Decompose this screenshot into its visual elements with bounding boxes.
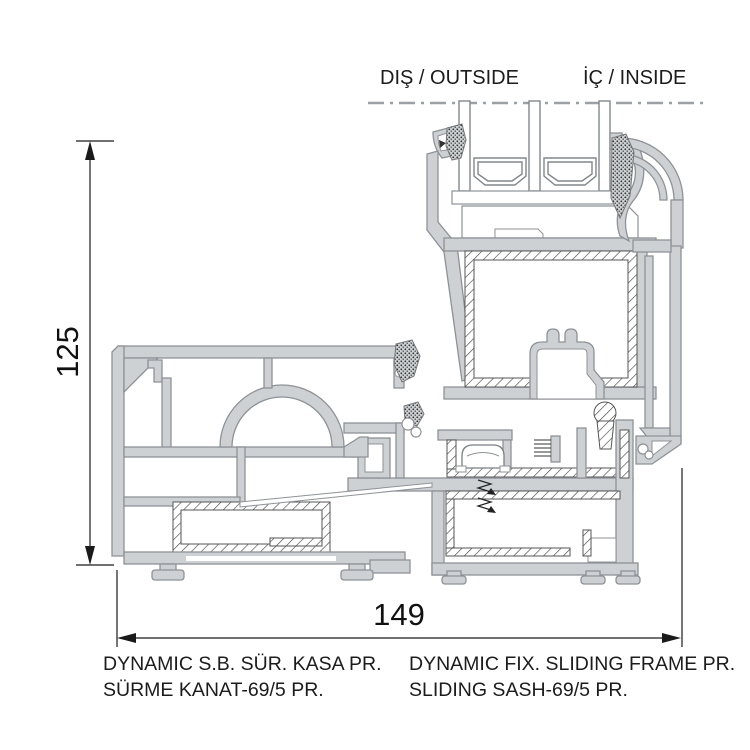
glass-pane xyxy=(529,101,540,191)
product-name-left-line1: DYNAMIC S.B. SÜR. KASA PR. xyxy=(103,653,381,675)
glazing-support-plate xyxy=(462,206,638,238)
glazing-spacer xyxy=(544,158,596,185)
sash-top-band xyxy=(118,346,406,358)
product-names: DYNAMIC S.B. SÜR. KASA PR. SÜRME KANAT-6… xyxy=(103,653,735,701)
glazing-bridge-plate xyxy=(452,191,618,204)
steel-reinforcement-sash-bottom xyxy=(173,502,330,552)
roller-wheel xyxy=(462,445,504,468)
technical-drawing-page: 125 149 DIŞ / OUTSIDE İÇ / INSIDE DYNAMI… xyxy=(0,0,750,750)
product-name-right-line2: SLIDING SASH-69/5 PR. xyxy=(409,679,628,701)
sash-left-wall xyxy=(112,346,124,556)
rail-hatch xyxy=(447,468,620,477)
inside-label: İÇ / INSIDE xyxy=(583,66,686,89)
frame-outer-wall xyxy=(670,246,681,442)
profile-section-drawing: 125 149 DIŞ / OUTSIDE İÇ / INSIDE DYNAMI… xyxy=(0,0,750,750)
glazing-spacer xyxy=(474,158,526,185)
glass-pane xyxy=(599,101,610,191)
frame-inner-wall xyxy=(645,256,653,428)
outside-label: DIŞ / OUTSIDE xyxy=(380,67,519,89)
glass-unit xyxy=(452,101,638,238)
brush-seal xyxy=(534,436,560,462)
frame-bottom-band xyxy=(432,563,638,575)
product-name-left-line2: SÜRME KANAT-69/5 PR. xyxy=(103,679,324,701)
height-dimension-value: 125 xyxy=(50,326,85,378)
sash-upper-band xyxy=(444,238,656,251)
dimension-height: 125 xyxy=(50,141,114,565)
product-name-right-line1: DYNAMIC FIX. SLIDING FRAME PR. xyxy=(409,653,735,675)
width-dimension-value: 149 xyxy=(373,597,425,632)
sill-gap-line xyxy=(240,483,432,507)
roller-assembly xyxy=(438,430,512,472)
arch-chamber-wall xyxy=(220,385,344,447)
sash-feet xyxy=(152,564,373,580)
interlock-steel-insert xyxy=(594,402,616,449)
